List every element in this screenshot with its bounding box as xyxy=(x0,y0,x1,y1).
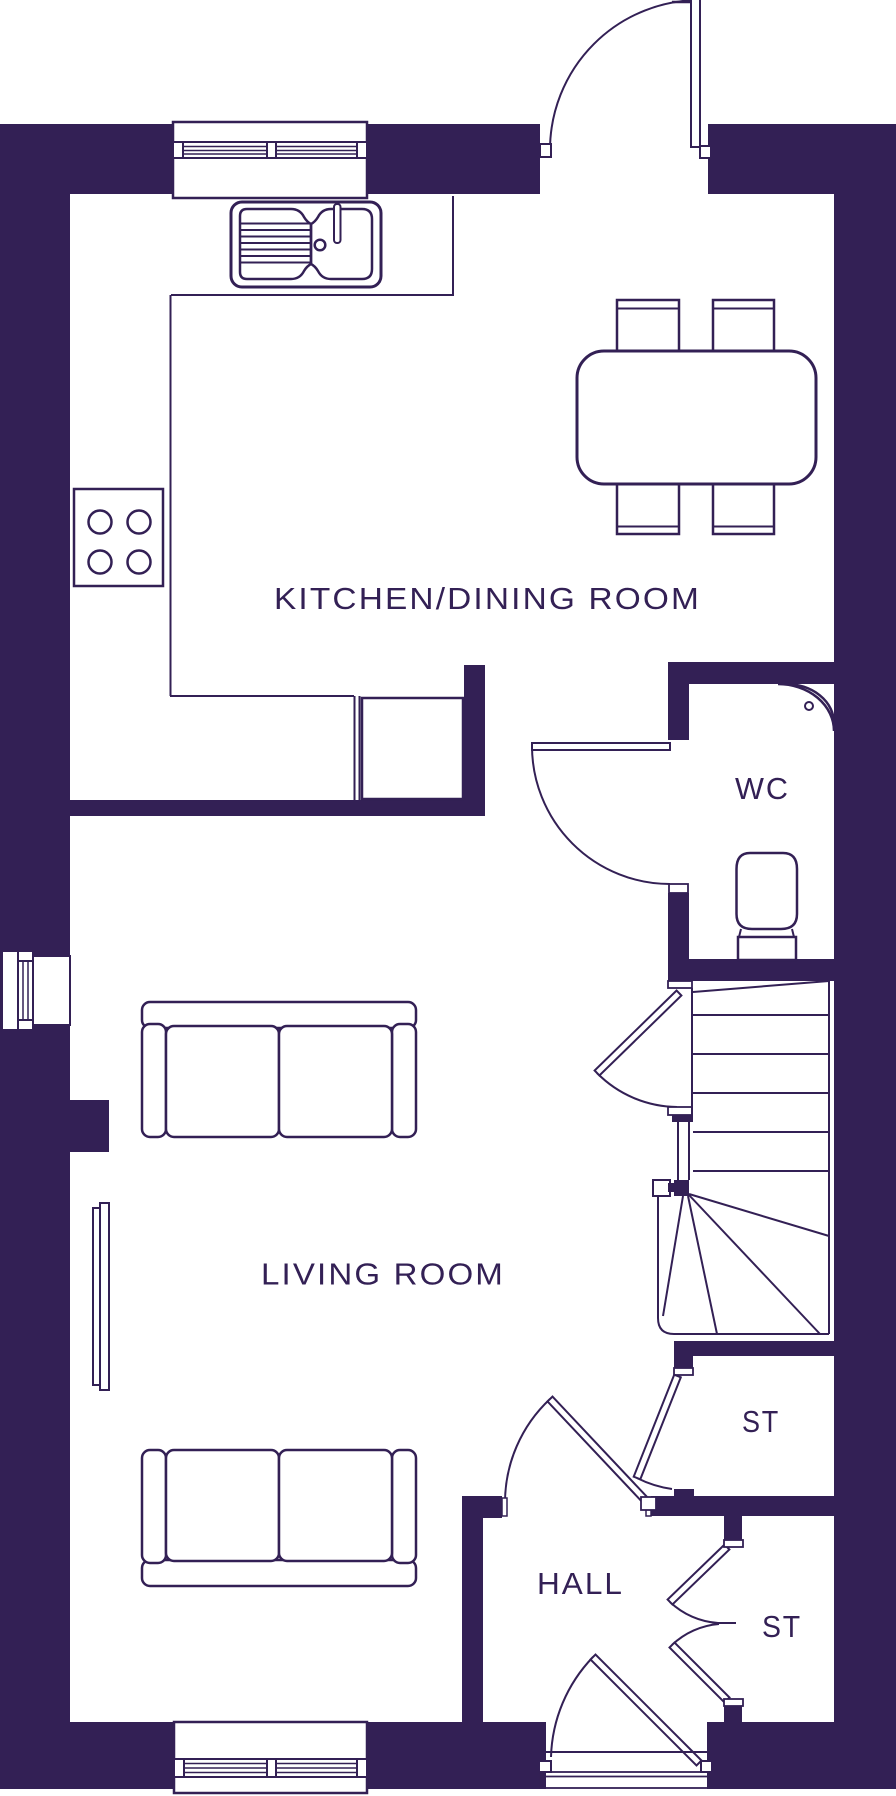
svg-text:ST: ST xyxy=(742,1404,780,1439)
svg-text:HALL: HALL xyxy=(537,1566,624,1601)
svg-text:ST: ST xyxy=(762,1609,802,1644)
svg-text:KITCHEN/DINING ROOM: KITCHEN/DINING ROOM xyxy=(274,581,701,616)
svg-text:WC: WC xyxy=(735,771,790,806)
svg-text:LIVING ROOM: LIVING ROOM xyxy=(261,1257,505,1292)
